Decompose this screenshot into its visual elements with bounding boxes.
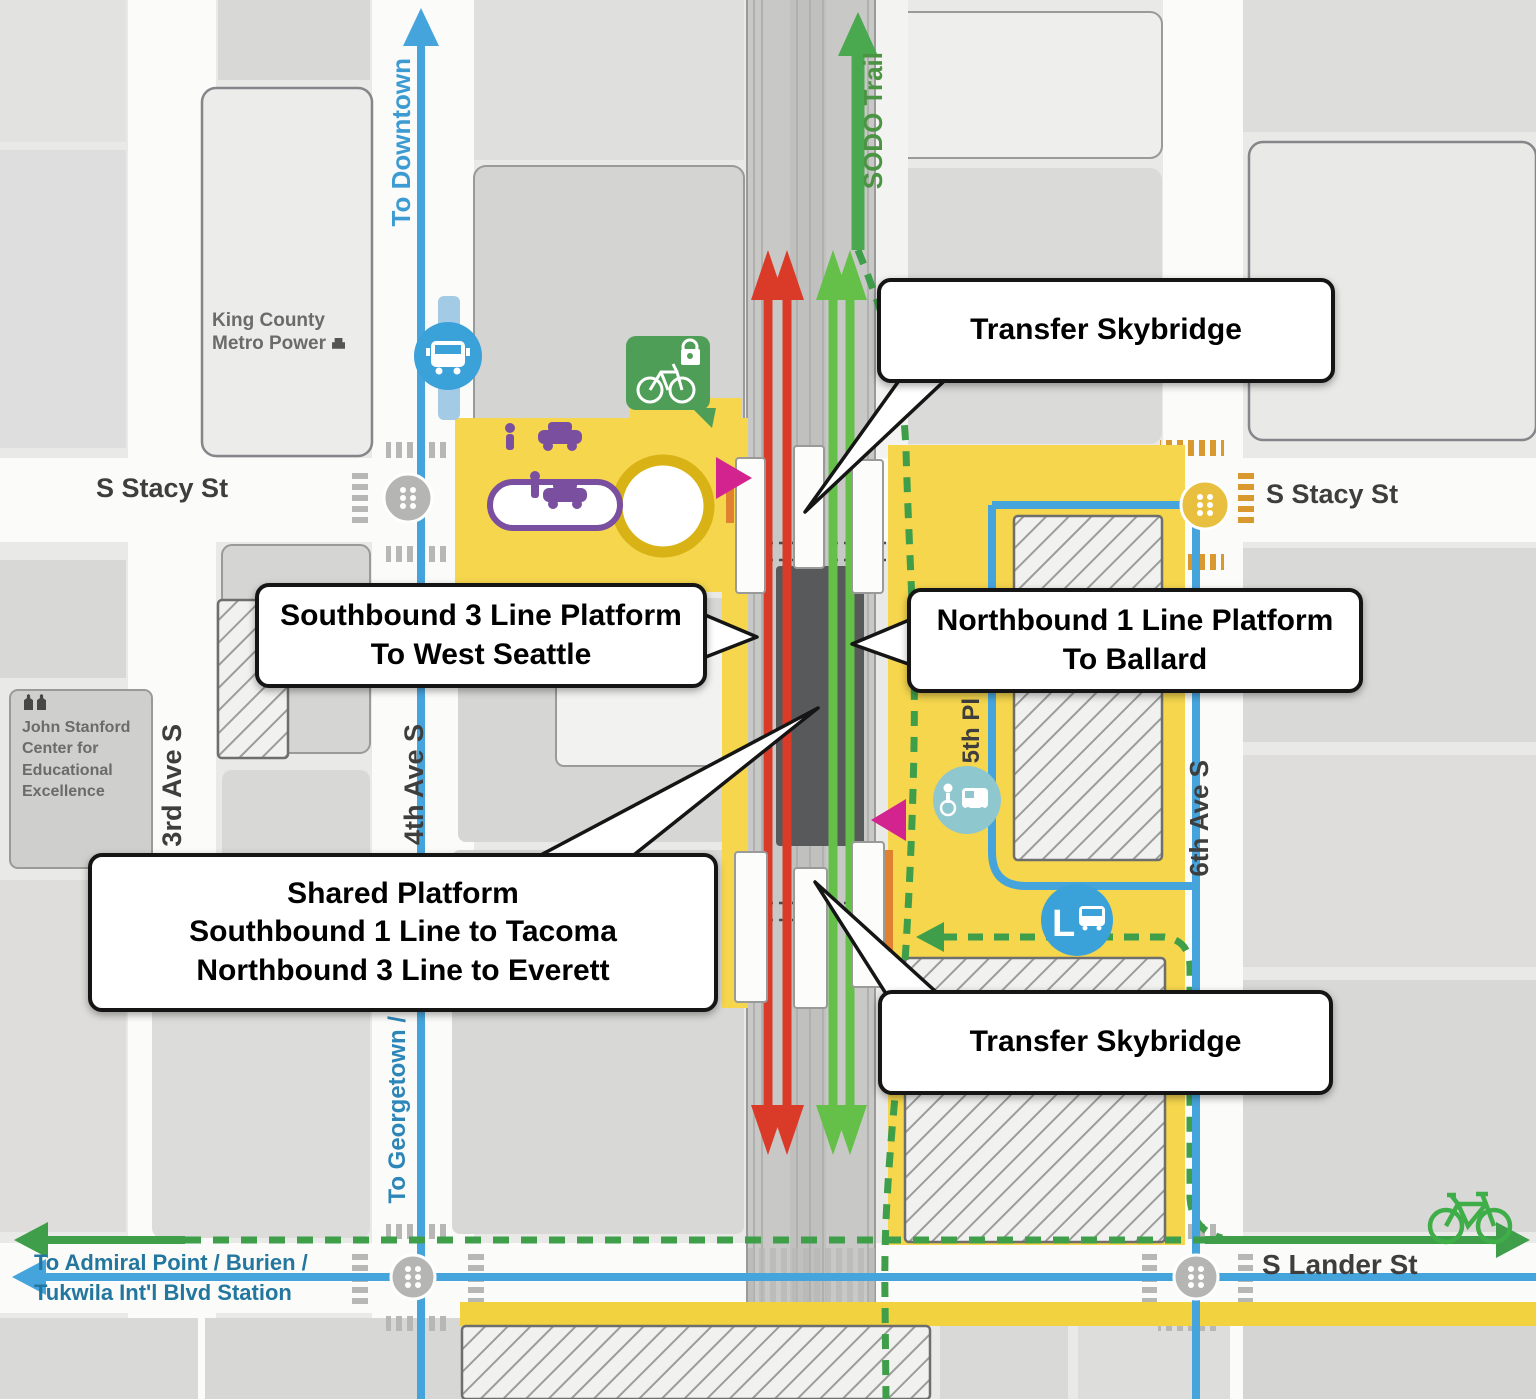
to-georgetown-label: To Georgetown / B bbox=[384, 992, 413, 1204]
stacy-street-label-right: S Stacy St bbox=[1266, 478, 1398, 510]
ave3-label: 3rd Ave S bbox=[156, 724, 188, 847]
person-icon bbox=[37, 694, 46, 710]
king-county-line1: King County bbox=[212, 310, 325, 331]
callout-line1: Shared Platform bbox=[287, 875, 519, 913]
callout-line2: To West Seattle bbox=[371, 636, 592, 674]
ave6-label: 6th Ave S bbox=[1184, 760, 1215, 877]
callout-line1: Northbound 1 Line Platform bbox=[937, 602, 1334, 640]
callout-line1: Southbound 3 Line Platform bbox=[280, 597, 682, 635]
callout-southbound-3-line: Southbound 3 Line Platform To West Seatt… bbox=[255, 583, 707, 688]
callout-northbound-1-line: Northbound 1 Line Platform To Ballard bbox=[907, 588, 1363, 693]
king-county-label: King County Metro Power bbox=[212, 310, 345, 356]
lander-street-label: S Lander St bbox=[1262, 1248, 1418, 1282]
stanford-line2: Center for bbox=[22, 740, 98, 757]
sodo-station-map: L King Cou bbox=[0, 0, 1536, 1399]
stanford-line4: Excellence bbox=[22, 783, 105, 800]
bus-layover-icon: L bbox=[1041, 884, 1113, 956]
callout-line2: Southbound 1 Line to Tacoma bbox=[189, 913, 617, 951]
map-graphic: L bbox=[0, 0, 1536, 1399]
callout-line2: To Ballard bbox=[1063, 641, 1207, 679]
king-county-building bbox=[202, 88, 372, 456]
callout-shared-platform: Shared Platform Southbound 1 Line to Tac… bbox=[88, 853, 718, 1012]
stacy-street-label-left: S Stacy St bbox=[96, 472, 228, 504]
paratransit-icon bbox=[933, 766, 1001, 834]
lander-yellow-band bbox=[460, 1302, 1536, 1326]
stanford-line1: John Stanford bbox=[22, 719, 130, 736]
pickup-loop-circle bbox=[617, 460, 709, 552]
sodo-trail-label: SODO Trail bbox=[858, 52, 889, 189]
layover-letter: L bbox=[1052, 903, 1075, 945]
callout-line3: Northbound 3 Line to Everett bbox=[196, 952, 609, 990]
callout-transfer-skybridge-top: Transfer Skybridge bbox=[877, 278, 1335, 383]
callout-text: Transfer Skybridge bbox=[970, 311, 1242, 349]
stanford-line3: Educational bbox=[22, 762, 113, 779]
john-stanford-label: John Stanford Center for Educational Exc… bbox=[22, 694, 142, 803]
callout-text: Transfer Skybridge bbox=[970, 1023, 1242, 1061]
to-admiral-line1: To Admiral Point / Burien / bbox=[34, 1250, 308, 1275]
ave5-label: 5th Pl bbox=[958, 698, 987, 763]
to-downtown-label: To Downtown bbox=[386, 58, 417, 226]
callout-transfer-skybridge-bottom: Transfer Skybridge bbox=[878, 990, 1333, 1095]
to-admiral-line2: Tukwila Int'l Blvd Station bbox=[34, 1280, 292, 1305]
ave4-label: 4th Ave S bbox=[398, 724, 430, 845]
person-icon bbox=[24, 694, 33, 710]
to-admiral-label: To Admiral Point / Burien / Tukwila Int'… bbox=[34, 1248, 308, 1307]
building-icon bbox=[332, 338, 345, 349]
king-county-line2: Metro Power bbox=[212, 333, 326, 354]
